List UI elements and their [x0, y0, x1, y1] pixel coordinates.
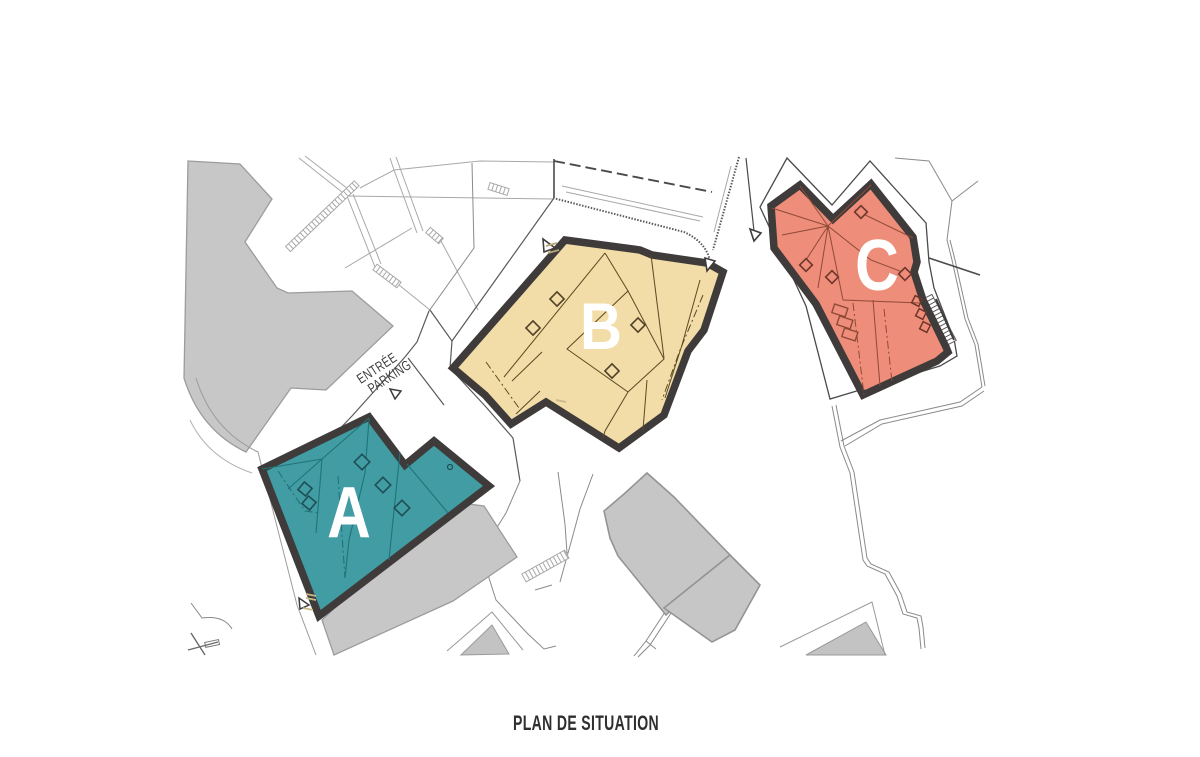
svg-text:C: C [855, 226, 899, 306]
svg-text:A: A [327, 473, 371, 553]
svg-text:PLAN DE SITUATION: PLAN DE SITUATION [513, 711, 659, 734]
svg-text:B: B [580, 291, 622, 364]
